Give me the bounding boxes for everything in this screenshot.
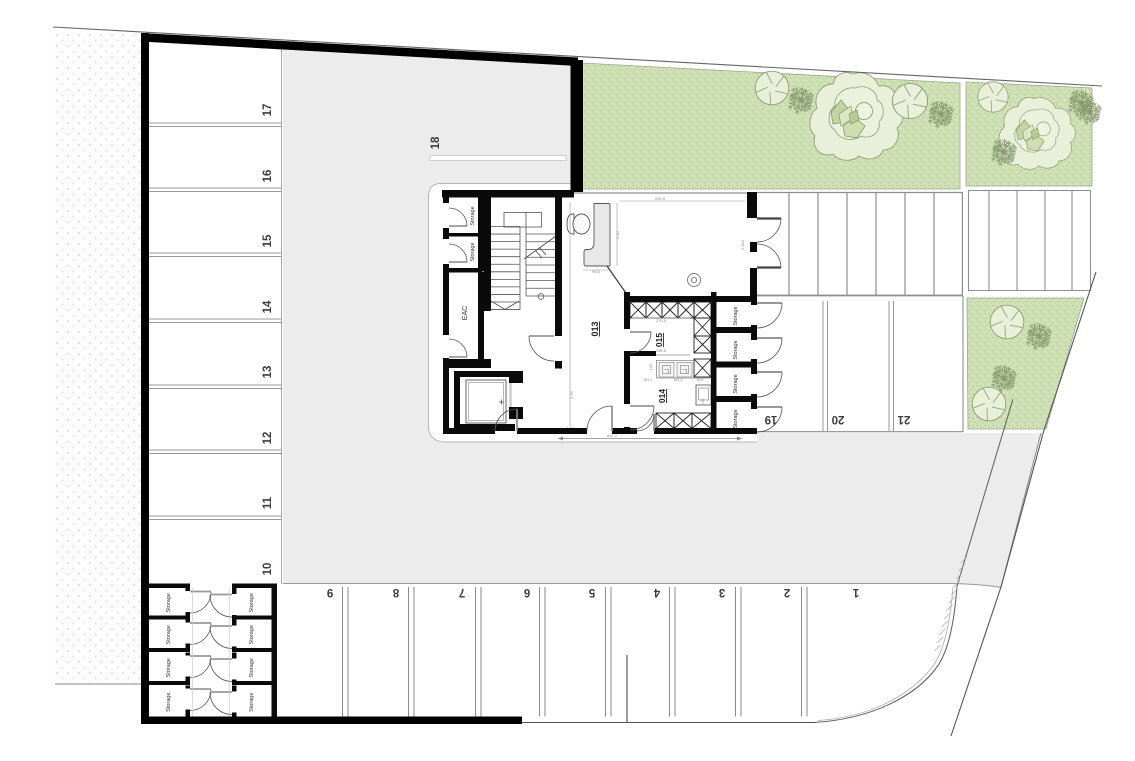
svg-text:8: 8 bbox=[392, 586, 399, 598]
svg-text:16: 16 bbox=[262, 170, 274, 183]
svg-text:817.2: 817.2 bbox=[607, 433, 618, 438]
svg-text:Storage: Storage bbox=[733, 340, 739, 359]
svg-text:Storage: Storage bbox=[249, 658, 255, 677]
svg-text:270.5: 270.5 bbox=[656, 318, 667, 323]
svg-text:2.415: 2.415 bbox=[740, 239, 745, 250]
svg-text:014: 014 bbox=[657, 389, 667, 403]
svg-text:4: 4 bbox=[653, 586, 660, 598]
svg-text:9: 9 bbox=[327, 586, 333, 598]
svg-text:234.9: 234.9 bbox=[655, 196, 666, 201]
svg-text:236.5: 236.5 bbox=[656, 348, 667, 353]
svg-text:20: 20 bbox=[832, 413, 845, 425]
svg-text:11: 11 bbox=[262, 496, 274, 509]
svg-text:0.60: 0.60 bbox=[701, 399, 705, 406]
svg-text:2: 2 bbox=[784, 586, 790, 598]
svg-text:19: 19 bbox=[765, 413, 778, 425]
svg-text:13: 13 bbox=[262, 366, 274, 379]
svg-text:17: 17 bbox=[262, 104, 274, 117]
svg-text:051.1: 051.1 bbox=[674, 378, 683, 382]
svg-text:90.6: 90.6 bbox=[592, 269, 601, 274]
svg-text:Storage: Storage bbox=[733, 374, 739, 393]
svg-text:18: 18 bbox=[430, 136, 442, 149]
svg-text:Storage: Storage bbox=[249, 693, 255, 712]
svg-text:Storage: Storage bbox=[470, 242, 476, 261]
svg-text:Storage: Storage bbox=[166, 625, 172, 644]
svg-text:051.1: 051.1 bbox=[644, 378, 653, 382]
svg-text:Storage: Storage bbox=[249, 625, 255, 644]
svg-text:013: 013 bbox=[590, 321, 600, 336]
svg-text:15: 15 bbox=[262, 234, 274, 247]
svg-text:3: 3 bbox=[719, 586, 725, 598]
svg-text:2.30: 2.30 bbox=[615, 230, 620, 239]
svg-text:Storage: Storage bbox=[733, 409, 739, 428]
svg-text:21: 21 bbox=[897, 413, 910, 425]
svg-text:Storage: Storage bbox=[249, 593, 255, 612]
svg-text:Storage: Storage bbox=[166, 593, 172, 612]
svg-text:09.0: 09.0 bbox=[697, 378, 704, 382]
svg-text:Storage: Storage bbox=[166, 693, 172, 712]
svg-text:14: 14 bbox=[262, 300, 274, 313]
svg-text:10: 10 bbox=[262, 563, 274, 576]
svg-text:Storage: Storage bbox=[166, 658, 172, 677]
svg-text:5: 5 bbox=[588, 586, 595, 598]
svg-text:7: 7 bbox=[459, 586, 465, 598]
svg-text:015: 015 bbox=[654, 333, 664, 347]
svg-text:12: 12 bbox=[262, 432, 274, 445]
svg-text:1: 1 bbox=[852, 586, 859, 598]
svg-text:6: 6 bbox=[524, 586, 530, 598]
svg-text:Storage: Storage bbox=[733, 306, 739, 325]
svg-text:EAC: EAC bbox=[462, 306, 469, 320]
svg-text:2.76: 2.76 bbox=[569, 390, 574, 399]
svg-text:Storage: Storage bbox=[470, 206, 476, 225]
svg-text:1.85: 1.85 bbox=[649, 364, 653, 371]
